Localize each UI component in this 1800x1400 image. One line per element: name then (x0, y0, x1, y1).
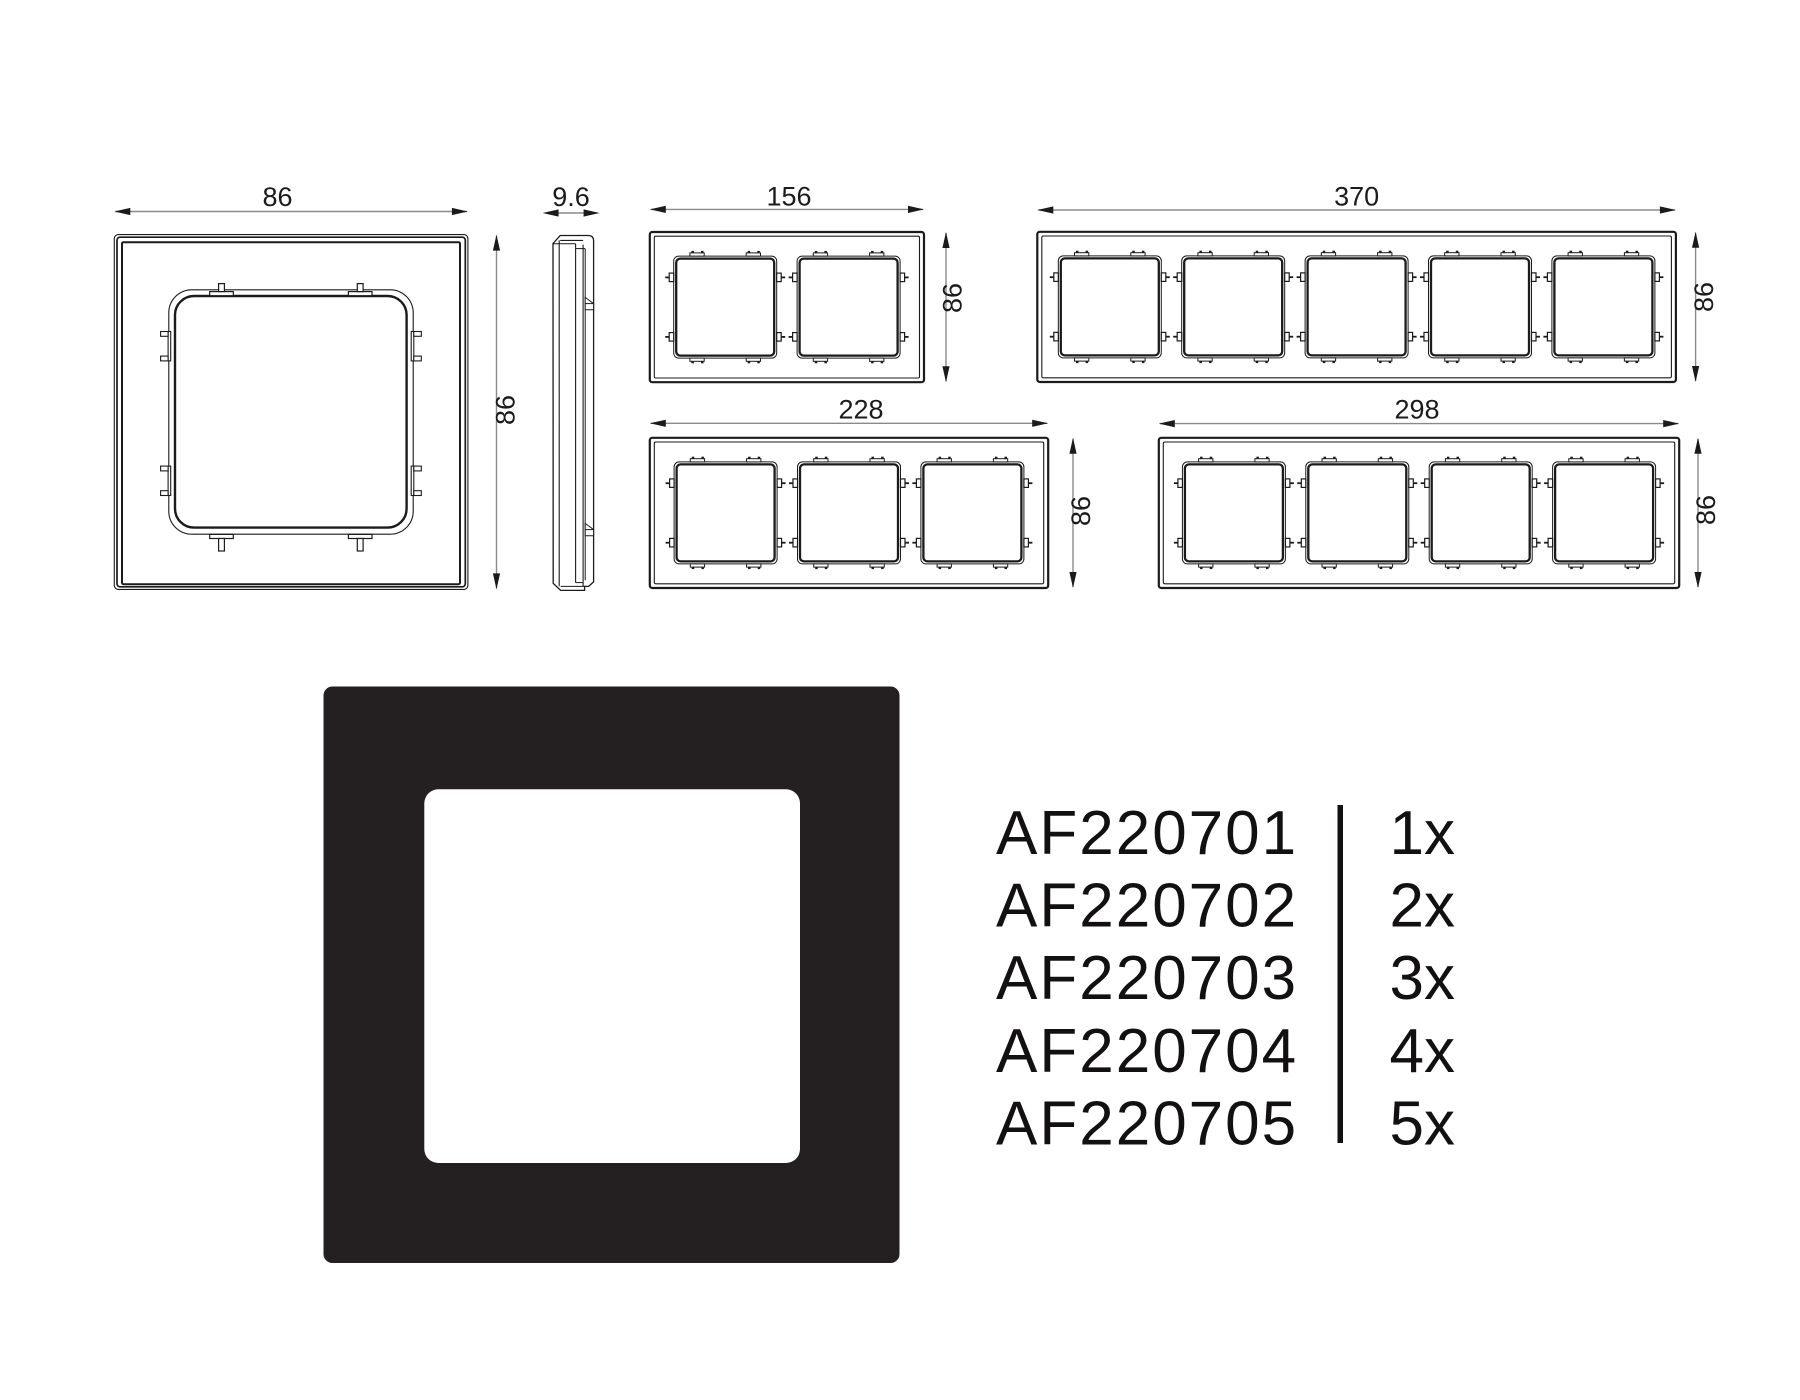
svg-text:156: 156 (766, 182, 811, 212)
svg-text:9.6: 9.6 (552, 182, 590, 212)
svg-text:370: 370 (1334, 182, 1379, 212)
svg-text:AF220702: AF220702 (996, 872, 1298, 941)
svg-text:86: 86 (1691, 495, 1721, 525)
svg-text:5x: 5x (1390, 1090, 1455, 1159)
svg-text:298: 298 (1394, 395, 1439, 425)
svg-text:1x: 1x (1390, 799, 1455, 868)
svg-text:AF220701: AF220701 (996, 799, 1298, 868)
svg-text:86: 86 (491, 395, 521, 425)
svg-text:86: 86 (1066, 496, 1096, 526)
svg-text:86: 86 (938, 283, 968, 313)
svg-text:228: 228 (838, 395, 883, 425)
svg-text:4x: 4x (1390, 1017, 1455, 1086)
svg-text:3x: 3x (1390, 944, 1455, 1013)
svg-text:AF220705: AF220705 (996, 1090, 1298, 1159)
svg-text:AF220704: AF220704 (996, 1017, 1298, 1086)
svg-text:86: 86 (262, 182, 292, 212)
svg-text:AF220703: AF220703 (996, 944, 1298, 1013)
svg-text:86: 86 (1689, 282, 1719, 312)
svg-text:2x: 2x (1390, 872, 1455, 941)
